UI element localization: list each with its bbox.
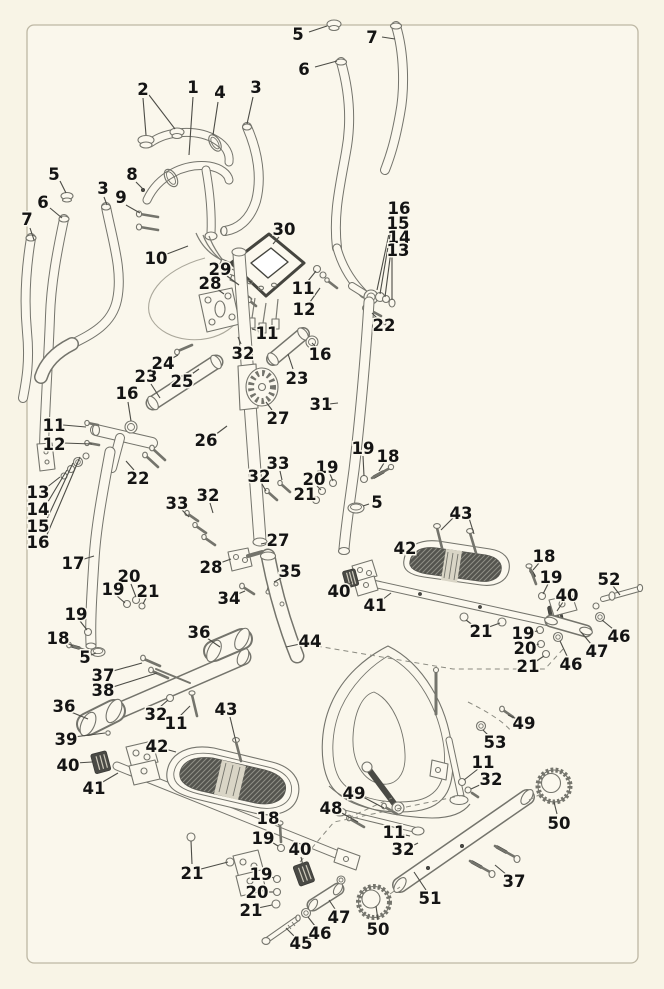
leader-line-23	[151, 384, 160, 398]
part-label-21: 21	[240, 901, 263, 920]
leader-line-6	[50, 208, 62, 218]
leader-line-9	[126, 205, 140, 213]
part-label-40: 40	[556, 586, 579, 605]
part-label-39: 39	[55, 730, 78, 749]
leader-line-51	[414, 872, 426, 890]
part-label-41: 41	[364, 596, 387, 615]
part-label-30: 30	[273, 220, 296, 239]
part-label-34: 34	[218, 589, 241, 608]
part-label-42: 42	[394, 539, 417, 558]
leader-line-39	[74, 733, 105, 737]
leader-line-6	[315, 61, 337, 67]
part-label-53: 53	[484, 733, 507, 752]
callout-layer: 5762143839567103029281112161514132211121…	[0, 0, 664, 989]
part-label-42: 42	[146, 737, 169, 756]
leader-line-43	[230, 717, 236, 742]
part-label-10: 10	[145, 249, 168, 268]
part-label-46: 46	[560, 655, 583, 674]
leader-line-37	[113, 663, 142, 671]
part-label-6: 6	[298, 60, 309, 79]
part-label-11: 11	[256, 324, 279, 343]
part-label-19: 19	[352, 439, 375, 458]
leader-line-49	[363, 797, 384, 808]
part-label-46: 46	[608, 627, 631, 646]
leader-line-19	[363, 456, 364, 476]
leader-line-38	[113, 673, 157, 687]
leader-line-21	[191, 841, 192, 864]
part-label-28: 28	[200, 558, 223, 577]
leader-line-5	[60, 181, 66, 193]
part-label-23: 23	[286, 369, 309, 388]
leader-line-50	[376, 906, 378, 920]
leader-line-32	[238, 337, 241, 344]
part-label-47: 47	[328, 908, 351, 927]
part-label-8: 8	[126, 165, 137, 184]
leader-line-16	[128, 402, 131, 421]
part-label-20: 20	[514, 639, 537, 658]
leader-line-15	[46, 463, 73, 521]
part-label-4: 4	[214, 83, 225, 102]
parts-diagram: 5762143839567103029281112161514132211121…	[0, 0, 664, 989]
part-label-36: 36	[188, 623, 211, 642]
part-label-51: 51	[419, 889, 442, 908]
part-label-36: 36	[53, 697, 76, 716]
part-label-18: 18	[47, 629, 70, 648]
part-label-11: 11	[165, 714, 188, 733]
part-label-21: 21	[517, 657, 540, 676]
leader-line-7	[382, 37, 395, 39]
part-label-16: 16	[309, 345, 332, 364]
part-label-5: 5	[292, 25, 303, 44]
leader-line-3	[104, 197, 107, 205]
part-label-44: 44	[299, 632, 322, 651]
part-label-21: 21	[181, 864, 204, 883]
part-label-5: 5	[79, 648, 90, 667]
part-label-43: 43	[215, 700, 238, 719]
part-label-6: 6	[37, 193, 48, 212]
part-label-17: 17	[62, 554, 85, 573]
part-label-26: 26	[195, 431, 218, 450]
part-label-22: 22	[127, 469, 150, 488]
part-label-41: 41	[83, 779, 106, 798]
part-label-50: 50	[367, 920, 390, 939]
leader-line-11	[63, 425, 86, 427]
part-label-20: 20	[246, 883, 269, 902]
part-label-40: 40	[57, 756, 80, 775]
part-label-32: 32	[248, 467, 271, 486]
leader-line-2	[149, 95, 175, 129]
part-label-19: 19	[252, 829, 275, 848]
part-label-40: 40	[289, 840, 312, 859]
part-label-31: 31	[310, 395, 333, 414]
part-label-19: 19	[102, 580, 125, 599]
part-label-13: 13	[387, 241, 410, 260]
part-label-19: 19	[540, 568, 563, 587]
part-label-27: 27	[267, 531, 290, 550]
part-label-16: 16	[116, 384, 139, 403]
leader-line-10	[167, 246, 188, 254]
part-label-28: 28	[199, 274, 222, 293]
leader-line-4	[213, 102, 218, 135]
part-label-52: 52	[598, 570, 621, 589]
leader-line-1	[189, 97, 193, 155]
leader-line-2	[143, 98, 146, 135]
part-label-47: 47	[586, 642, 609, 661]
part-label-9: 9	[115, 188, 126, 207]
part-label-18: 18	[257, 809, 280, 828]
part-label-18: 18	[377, 447, 400, 466]
part-label-32: 32	[392, 840, 415, 859]
part-label-32: 32	[197, 486, 220, 505]
leader-line-23	[288, 354, 293, 369]
part-label-27: 27	[267, 409, 290, 428]
part-label-49: 49	[343, 784, 366, 803]
part-label-22: 22	[373, 316, 396, 335]
part-label-37: 37	[503, 872, 526, 891]
part-label-48: 48	[320, 799, 343, 818]
part-label-11: 11	[292, 279, 315, 298]
part-label-5: 5	[371, 493, 382, 512]
part-label-7: 7	[21, 210, 32, 229]
part-label-40: 40	[328, 582, 351, 601]
leader-line-5	[309, 26, 327, 32]
part-label-35: 35	[279, 562, 302, 581]
part-label-3: 3	[97, 179, 108, 198]
part-label-38: 38	[92, 681, 115, 700]
part-label-12: 12	[43, 435, 66, 454]
part-label-21: 21	[137, 582, 160, 601]
part-label-1: 1	[187, 78, 198, 97]
part-label-50: 50	[548, 814, 571, 833]
part-label-12: 12	[293, 300, 316, 319]
part-label-24: 24	[152, 354, 175, 373]
leader-line-5	[363, 504, 369, 506]
part-label-5: 5	[48, 165, 59, 184]
part-label-16: 16	[27, 533, 50, 552]
part-label-43: 43	[450, 504, 473, 523]
part-label-49: 49	[513, 714, 536, 733]
leader-line-48	[340, 812, 358, 822]
leader-line-5	[91, 653, 96, 655]
part-label-7: 7	[366, 28, 377, 47]
part-label-25: 25	[171, 372, 194, 391]
part-label-19: 19	[250, 865, 273, 884]
part-label-32: 32	[232, 344, 255, 363]
leader-line-7	[30, 228, 34, 240]
part-label-18: 18	[533, 547, 556, 566]
part-label-11: 11	[43, 416, 66, 435]
part-label-19: 19	[65, 605, 88, 624]
leader-line-21	[201, 862, 228, 869]
part-label-2: 2	[137, 80, 148, 99]
leader-line-50	[554, 802, 557, 814]
part-label-21: 21	[294, 485, 317, 504]
part-label-32: 32	[480, 770, 503, 789]
part-label-33: 33	[166, 494, 189, 513]
leader-line-12	[63, 443, 92, 444]
leader-line-3	[247, 97, 253, 124]
part-label-3: 3	[250, 78, 261, 97]
leader-line-46	[560, 641, 567, 656]
part-label-21: 21	[470, 622, 493, 641]
